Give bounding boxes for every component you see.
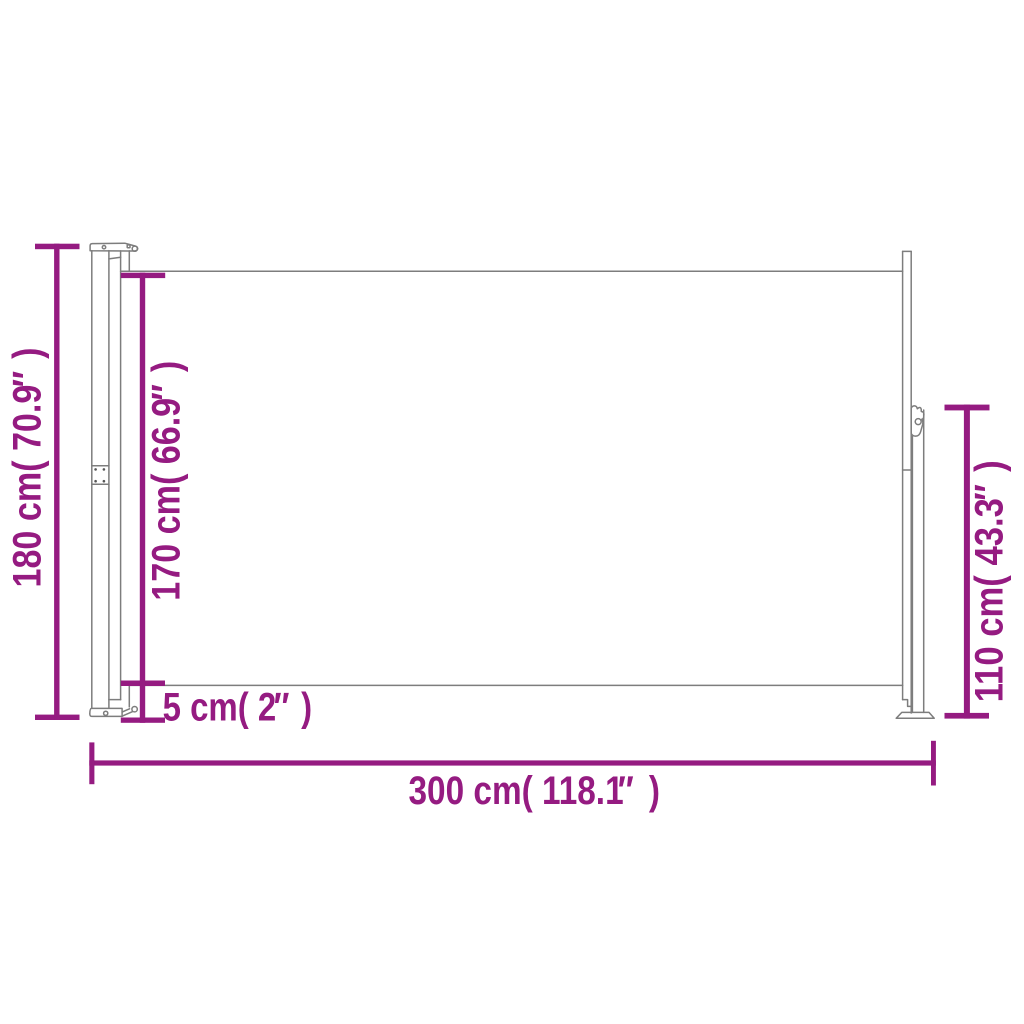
svg-text:300 cm( 118.1″ ): 300 cm( 118.1″ ) (409, 769, 661, 813)
svg-text:180 cm( 70.9″ ): 180 cm( 70.9″ ) (5, 348, 49, 588)
svg-text:110 cm( 43.3″ ): 110 cm( 43.3″ ) (967, 460, 1011, 702)
svg-text:5 cm( 2″ ): 5 cm( 2″ ) (163, 685, 313, 729)
svg-text:170 cm( 66.9″ ): 170 cm( 66.9″ ) (145, 361, 189, 601)
